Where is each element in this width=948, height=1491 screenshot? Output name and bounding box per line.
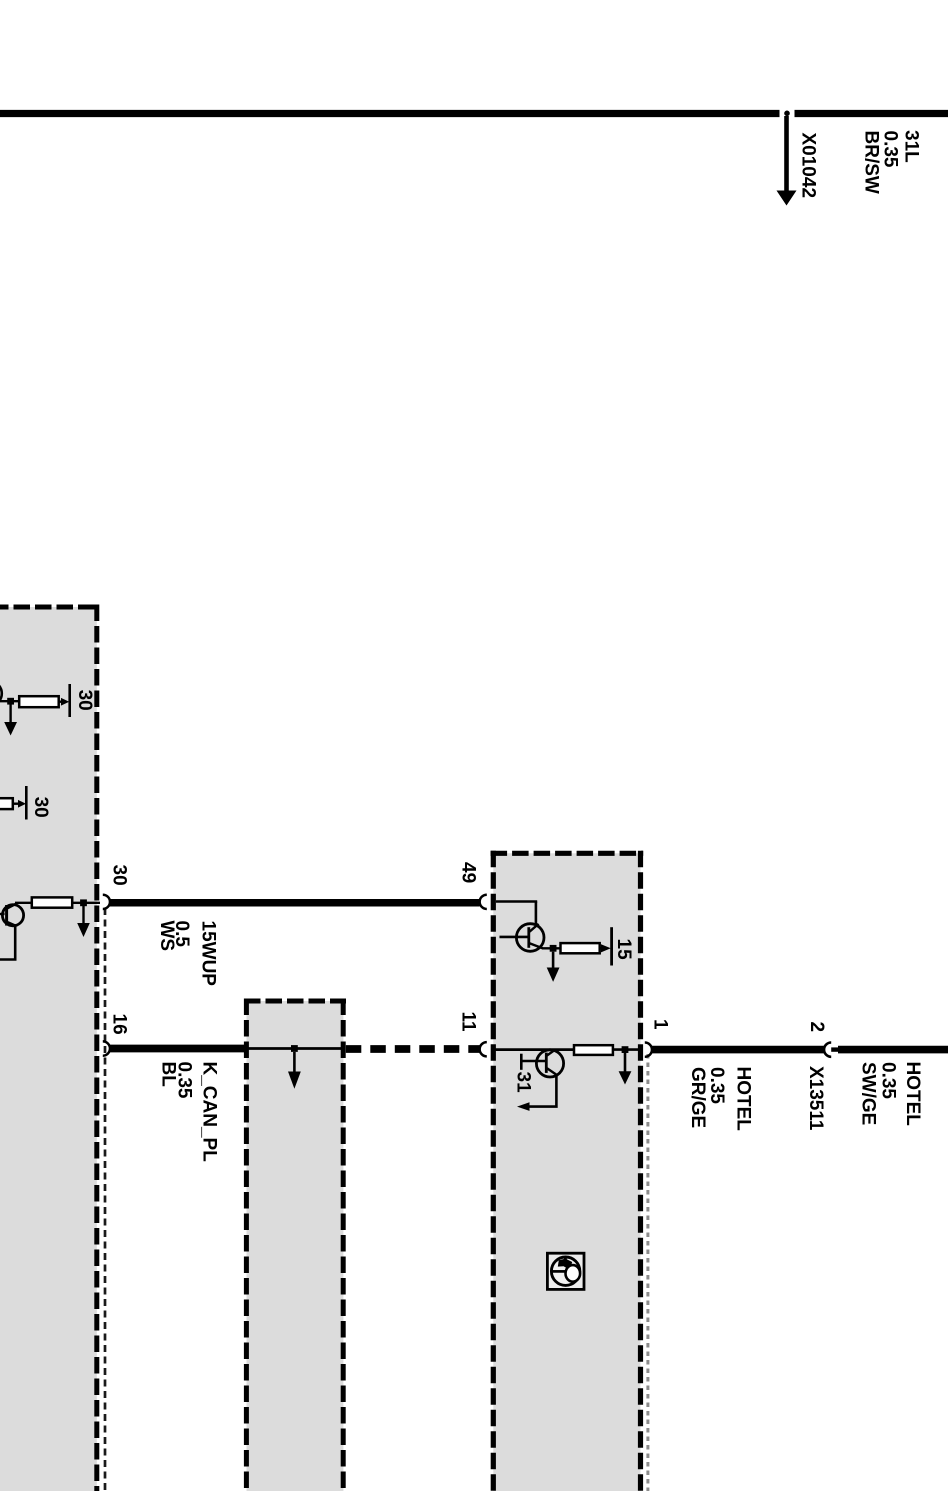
svg-text:HOTEL: HOTEL	[902, 1062, 923, 1127]
svg-text:11: 11	[458, 1012, 479, 1033]
svg-text:31: 31	[513, 1072, 534, 1094]
svg-text:WS: WS	[156, 921, 177, 952]
svg-text:1: 1	[650, 1019, 671, 1030]
svg-text:X13511: X13511	[805, 1066, 826, 1131]
svg-text:30: 30	[74, 690, 95, 711]
svg-text:15: 15	[613, 939, 634, 961]
svg-text:BL: BL	[158, 1062, 179, 1088]
svg-text:30: 30	[30, 797, 51, 818]
svg-text:49: 49	[458, 862, 479, 883]
svg-text:0.35: 0.35	[880, 131, 901, 168]
svg-text:X01042: X01042	[798, 133, 819, 199]
svg-text:HOTEL: HOTEL	[733, 1067, 754, 1132]
svg-text:16: 16	[109, 1014, 130, 1035]
svg-text:2: 2	[806, 1022, 827, 1033]
svg-text:0.35: 0.35	[706, 1067, 727, 1104]
svg-text:BR/SW: BR/SW	[861, 131, 882, 194]
svg-text:GR/GE: GR/GE	[687, 1067, 708, 1128]
svg-text:SW/GE: SW/GE	[858, 1062, 879, 1125]
svg-text:31L: 31L	[901, 130, 922, 163]
svg-text:15WUP: 15WUP	[198, 921, 219, 987]
svg-text:30: 30	[109, 865, 130, 886]
svg-text:0.35: 0.35	[878, 1062, 899, 1099]
svg-text:K_CAN_PL: K_CAN_PL	[199, 1062, 220, 1163]
